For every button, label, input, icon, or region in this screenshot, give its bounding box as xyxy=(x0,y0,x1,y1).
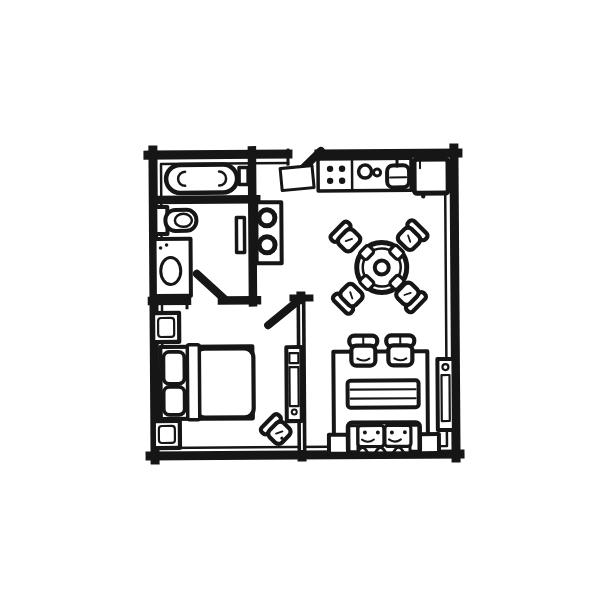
bathroom-door-leaf xyxy=(197,274,225,300)
kitchen xyxy=(318,158,448,199)
hallway xyxy=(256,202,281,263)
plan-root xyxy=(148,148,460,460)
bed-blanket xyxy=(195,348,253,417)
living-area xyxy=(328,335,454,456)
tub-shelf xyxy=(239,167,248,184)
sofa-cushion-left xyxy=(358,425,384,446)
washer-drum-bottom xyxy=(259,237,275,253)
pillow-top xyxy=(163,352,184,384)
floor-plan-canvas xyxy=(0,0,612,612)
bathroom-east-wall xyxy=(252,150,253,302)
doormat xyxy=(280,166,314,191)
dining-area xyxy=(329,219,430,316)
side-table-right xyxy=(420,434,439,453)
refrigerator-foot-dot xyxy=(421,194,425,198)
coffee-table xyxy=(348,380,419,407)
sofa-cushion-right xyxy=(385,425,411,446)
floor-plan-illustration xyxy=(0,0,612,612)
corner-chair-dot xyxy=(280,437,283,440)
washer-drum-top xyxy=(259,210,275,226)
armchair-left xyxy=(349,336,377,366)
outer-wall-top-right xyxy=(319,153,458,154)
pillow-bottom xyxy=(164,387,185,415)
side-table-left xyxy=(329,435,348,454)
bedroom-door-leaf xyxy=(268,300,299,325)
armchair-right xyxy=(386,335,414,365)
dining-chair-nw xyxy=(329,220,364,255)
bathtub-divider-wall xyxy=(156,199,256,200)
outer-wall-top-left xyxy=(148,154,288,155)
towel-rail xyxy=(236,217,244,252)
blanket-fold xyxy=(187,345,200,420)
bedroom xyxy=(153,312,302,448)
